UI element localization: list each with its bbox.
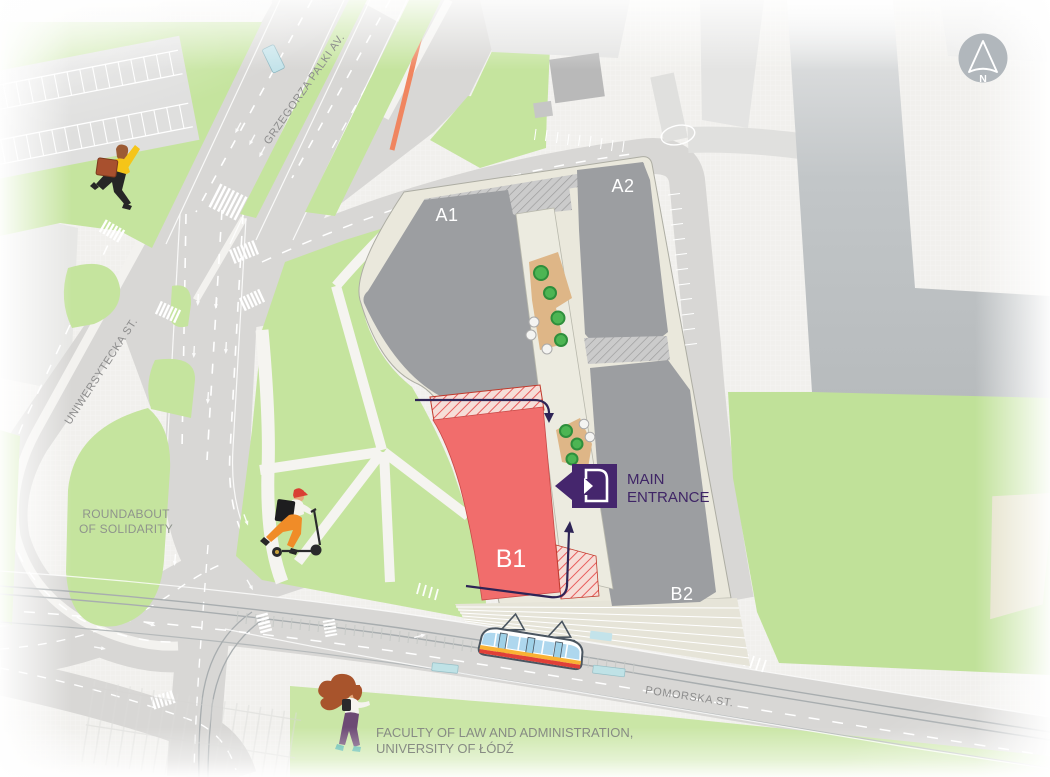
svg-text:ROUNDABOUT: ROUNDABOUT — [82, 507, 170, 521]
svg-text:UNIVERSITY OF ŁÓDŹ: UNIVERSITY OF ŁÓDŹ — [376, 741, 514, 756]
svg-text:A2: A2 — [611, 176, 634, 196]
svg-text:OF SOLIDARITY: OF SOLIDARITY — [79, 522, 173, 536]
svg-text:MAIN: MAIN — [627, 471, 665, 488]
svg-text:N: N — [979, 73, 987, 85]
svg-text:B1: B1 — [496, 545, 527, 573]
svg-text:A1: A1 — [435, 205, 458, 225]
svg-text:B2: B2 — [670, 584, 693, 604]
svg-text:FACULTY OF LAW AND ADMINISTRAT: FACULTY OF LAW AND ADMINISTRATION, — [376, 725, 633, 740]
svg-text:ENTRANCE: ENTRANCE — [627, 489, 710, 506]
